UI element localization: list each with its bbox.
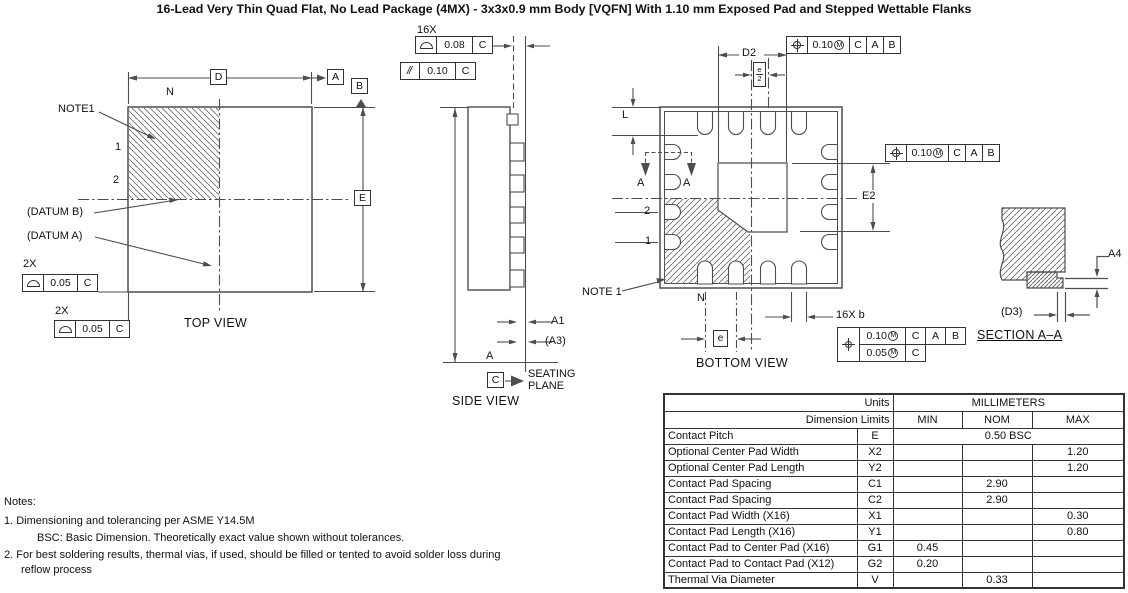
mmc-modifier-icon: M: [888, 331, 898, 341]
fcf-datum: C: [78, 274, 98, 292]
table-row: Contact Pad Length (X16) Y1 0.80: [664, 524, 1124, 540]
fcf-datum: A: [966, 144, 983, 162]
top-view-note1-label: NOTE1: [58, 103, 95, 116]
table-col-max: MAX: [1032, 411, 1124, 428]
datum-b-box: B: [351, 78, 368, 94]
dimension-table: Units MILLIMETERS Dimension Limits MIN N…: [663, 393, 1125, 589]
fcf-datum: A: [867, 36, 884, 54]
e-half-denominator: 2: [757, 75, 761, 83]
position-symbol-icon: [842, 338, 855, 351]
top-view-n-label: N: [166, 86, 174, 99]
fcf-datum: C: [456, 62, 476, 80]
fcf-datum: C: [949, 144, 966, 162]
table-row: Contact Pad to Contact Pad (X12) G2 0.20: [664, 556, 1124, 572]
dim-e-half-box: e 2: [753, 62, 766, 87]
fcf-datum: B: [946, 327, 966, 345]
fcf-tolerance: 0.10: [912, 147, 932, 159]
top-view-drawing: [78, 72, 375, 320]
profile-surface-icon: [420, 42, 433, 49]
bottom-view-pin1-label: 1: [645, 235, 651, 248]
section-arrow-a-label2: A: [683, 177, 690, 190]
table-col-nom: NOM: [962, 411, 1032, 428]
fcf-position-top: 0.10M C A B: [786, 36, 901, 54]
mmc-modifier-icon: M: [834, 40, 844, 50]
fcf-datum: B: [983, 144, 1000, 162]
dim-l-label: L: [622, 109, 628, 122]
fcf-16x-qty: 16X: [417, 24, 437, 37]
bottom-view-pin2-label: 2: [644, 205, 650, 218]
position-symbol-icon: [791, 39, 804, 52]
section-view-title: SECTION A–A: [977, 328, 1062, 342]
section-view-drawing: [1000, 208, 1108, 322]
dim-a3-label: (A3): [545, 335, 566, 348]
table-row: Contact Pad Spacing C1 2.90: [664, 476, 1124, 492]
fcf-datum: B: [884, 36, 901, 54]
top-view-title: TOP VIEW: [184, 316, 247, 330]
table-row: Contact Pad to Center Pad (X16) G1 0.45: [664, 540, 1124, 556]
section-arrow-a-label1: A: [637, 177, 644, 190]
bottom-view-drawing: [612, 46, 890, 352]
dim-e-box: e: [713, 330, 728, 347]
table-col-min: MIN: [893, 411, 962, 428]
note-line-2: BSC: Basic Dimension. Theoretically exac…: [37, 532, 404, 544]
bottom-view-n-label: N: [697, 292, 705, 305]
fcf-datum: A: [926, 327, 946, 345]
fcf-datum: C: [110, 320, 130, 338]
bottom-view-note1-label: NOTE 1: [582, 286, 622, 299]
dim-e2-label: E2: [860, 190, 877, 203]
datum-b-label: (DATUM B): [27, 206, 83, 219]
table-row: Contact Pitch E 0.50 BSC: [664, 428, 1124, 444]
table-units-label: Units: [664, 394, 893, 411]
bottom-view-title: BOTTOM VIEW: [696, 356, 788, 370]
table-row: Optional Center Pad Length Y2 1.20: [664, 460, 1124, 476]
fcf-datum: C: [850, 36, 867, 54]
datasheet-page: 16-Lead Very Thin Quad Flat, No Lead Pac…: [0, 0, 1128, 593]
fcf-flatness1-qty: 2X: [23, 258, 36, 271]
fcf-datum: C: [473, 36, 493, 54]
profile-surface-icon: [27, 280, 40, 287]
fcf-tolerance: 0.05: [44, 274, 78, 292]
position-symbol-icon: [890, 147, 903, 160]
table-row: Optional Center Pad Width X2 1.20: [664, 444, 1124, 460]
fcf-tolerance: 0.08: [437, 36, 473, 54]
table-limits-label: Dimension Limits: [664, 411, 893, 428]
fcf-flatness2-qty: 2X: [55, 305, 68, 318]
top-view-pin1-label: 1: [115, 141, 121, 154]
datum-a-label: (DATUM A): [27, 230, 82, 243]
note-line-4: reflow process: [21, 564, 92, 576]
notes-heading: Notes:: [4, 496, 36, 508]
seating-plane-label2: PLANE: [528, 380, 564, 393]
dim-d2-label: D2: [740, 47, 758, 60]
fcf-datum: C: [906, 345, 926, 363]
fcf-flatness1: 0.05 C: [22, 274, 98, 292]
parallelism-icon: //: [407, 65, 413, 77]
note-line-1: 1. Dimensioning and tolerancing per ASME…: [4, 515, 255, 527]
dim-16x-b-label: 16X b: [836, 309, 865, 322]
fcf-position-right: 0.10M C A B: [885, 144, 1000, 162]
dim-d3-label: (D3): [1001, 306, 1022, 319]
side-view-drawing: [440, 36, 558, 387]
table-row: Contact Pad Spacing C2 2.90: [664, 492, 1124, 508]
dim-d-box: D: [210, 69, 227, 85]
top-view-pin2-label: 2: [113, 174, 119, 187]
datum-a-box: A: [327, 69, 344, 85]
datum-c-box: C: [487, 372, 504, 388]
mmc-modifier-icon: M: [888, 348, 898, 358]
fcf-profile-16x: 0.08 C: [415, 36, 493, 54]
fcf-position-composite: 0.10M C A B 0.05M C: [837, 327, 966, 362]
fcf-tolerance: 0.05: [867, 347, 887, 359]
dim-e-box: E: [354, 190, 371, 206]
dim-a-label: A: [486, 350, 493, 363]
table-row: Thermal Via Diameter V 0.33: [664, 572, 1124, 588]
dim-a4-label: A4: [1108, 248, 1121, 261]
mmc-modifier-icon: M: [933, 148, 943, 158]
seating-plane-label1: SEATING: [528, 368, 575, 381]
dim-a1-label: A1: [551, 315, 564, 328]
profile-surface-icon: [59, 326, 72, 333]
table-units-value: MILLIMETERS: [893, 394, 1124, 411]
fcf-tolerance: 0.10: [420, 62, 456, 80]
side-view-title: SIDE VIEW: [452, 394, 519, 408]
fcf-tolerance: 0.10: [867, 330, 887, 342]
fcf-tolerance: 0.10: [813, 39, 833, 51]
fcf-datum: C: [906, 327, 926, 345]
fcf-parallelism: // 0.10 C: [400, 62, 476, 80]
fcf-tolerance: 0.05: [76, 320, 110, 338]
table-row: Contact Pad Width (X16) X1 0.30: [664, 508, 1124, 524]
fcf-flatness2: 0.05 C: [54, 320, 130, 338]
note-line-3: 2. For best soldering results, thermal v…: [4, 549, 500, 561]
